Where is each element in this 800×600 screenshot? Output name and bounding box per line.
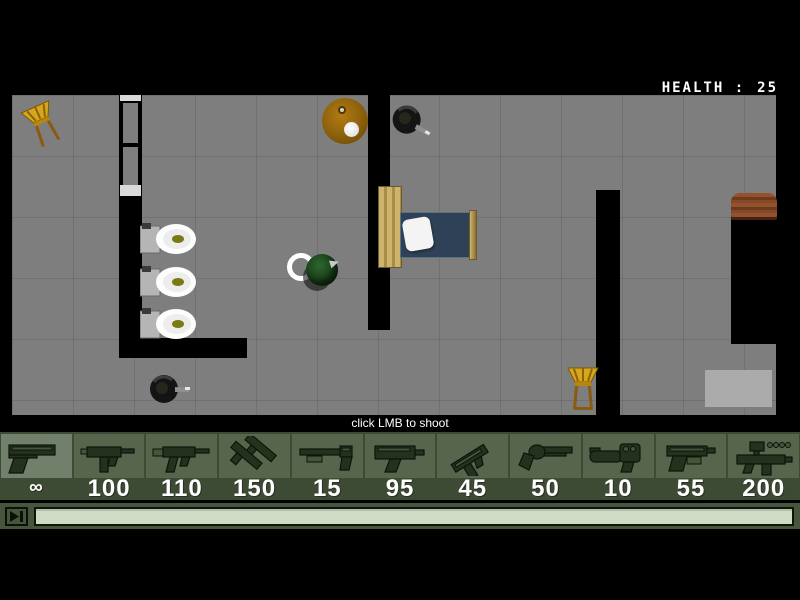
laser-pistol-icon: [661, 436, 721, 476]
weapon-slot-panel[interactable]: [1, 434, 72, 478]
bed-headboard: [378, 186, 402, 268]
door: [119, 95, 142, 197]
uzi-icon: [79, 436, 139, 476]
player-control-strip: [0, 500, 800, 529]
tilted-pistol-icon: [443, 436, 503, 476]
weapon-slot-panel[interactable]: [74, 434, 145, 478]
weapon-slot-panel[interactable]: [437, 434, 508, 478]
ammo-count: 10: [604, 478, 633, 500]
bed: [376, 186, 480, 270]
door-frame-bottom: [120, 185, 141, 196]
play-next-button[interactable]: [5, 507, 28, 526]
bottom-letterbox: [0, 529, 800, 600]
weapon-slot-panel[interactable]: [656, 434, 727, 478]
tutorial-hint: click LMB to shoot: [0, 415, 800, 432]
toilet: [140, 221, 198, 257]
ammo-count: 100: [88, 478, 131, 500]
weapon-slot-scoped-rifle[interactable]: 200: [728, 434, 799, 500]
scoped-rifle-icon: [734, 436, 794, 476]
ammo-count: 200: [742, 478, 785, 500]
weapon-slot-panel[interactable]: [219, 434, 290, 478]
wall-left-vertical: [119, 197, 142, 358]
round-table: [322, 98, 368, 144]
frying-pan: [148, 372, 192, 410]
wooden-crate: [731, 193, 777, 220]
health-value: 25: [757, 80, 778, 96]
door-panel: [121, 145, 140, 187]
bed-footboard: [469, 210, 477, 260]
ammo-count: ∞: [29, 478, 44, 500]
health-display: HEALTH : 25: [662, 80, 778, 96]
weapon-slot-panel[interactable]: [292, 434, 363, 478]
weapon-slot-panel[interactable]: [728, 434, 799, 478]
health-label: HEALTH :: [662, 80, 745, 96]
chair: [565, 366, 601, 414]
weapon-bar: ∞100110150159545501055200: [0, 432, 800, 500]
weapon-slot-shotgun[interactable]: 15: [292, 434, 363, 500]
smg-stock-icon: [152, 436, 212, 476]
weapon-slot-uzi[interactable]: 100: [74, 434, 145, 500]
grenade-launcher-icon: [588, 436, 648, 476]
weapon-slot-desert-eagle[interactable]: ∞: [1, 434, 72, 500]
toilet: [140, 264, 198, 300]
weapon-slot-panel[interactable]: [365, 434, 436, 478]
ammo-count: 15: [313, 478, 342, 500]
weapon-slot-mac10[interactable]: 95: [365, 434, 436, 500]
game-stage: HEALTH : 25: [0, 0, 800, 600]
weapon-slot-tec9[interactable]: 45: [437, 434, 508, 500]
revolver-icon: [516, 436, 576, 476]
shotgun-icon: [297, 436, 357, 476]
weapon-slot-panel[interactable]: [510, 434, 581, 478]
toilet: [140, 306, 198, 342]
progress-bar[interactable]: [34, 507, 794, 526]
weapon-slot-mp5[interactable]: 110: [146, 434, 217, 500]
door-panel: [121, 101, 140, 145]
wall-right-column: [731, 218, 776, 344]
ammo-count: 45: [458, 478, 487, 500]
weapon-slot-dual-uzi[interactable]: 150: [219, 434, 290, 500]
dual-uzi-icon: [225, 436, 285, 476]
plate-icon: [344, 122, 359, 137]
ammo-count: 95: [386, 478, 415, 500]
machine-pistol-icon: [370, 436, 430, 476]
ammo-count: 150: [233, 478, 276, 500]
ammo-count: 50: [531, 478, 560, 500]
ammo-count: 110: [161, 478, 203, 500]
weapon-slot-grenade-launcher[interactable]: 10: [583, 434, 654, 500]
weapon-slot-panel[interactable]: [583, 434, 654, 478]
weapon-slot-revolver[interactable]: 50: [510, 434, 581, 500]
ammo-count: 55: [677, 478, 706, 500]
bed-pillow: [401, 216, 434, 252]
pistol-icon: [6, 436, 66, 476]
rug: [705, 370, 772, 407]
cup-icon: [338, 106, 346, 114]
play-next-icon: [9, 511, 24, 522]
weapon-slot-laser-pistol[interactable]: 55: [656, 434, 727, 500]
weapon-slot-panel[interactable]: [146, 434, 217, 478]
